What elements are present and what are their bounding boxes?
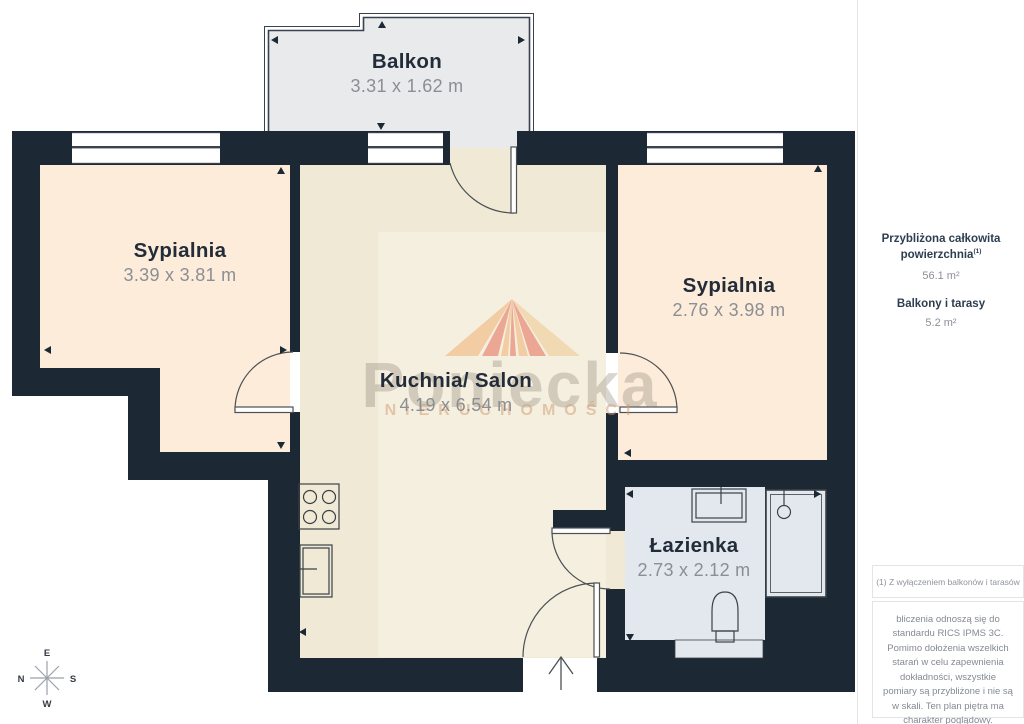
window-bedroom-right [647, 132, 783, 164]
room-label-kuchnia-salon: Kuchnia/ Salon 4.19 x 6.54 m [380, 369, 532, 416]
room-name: Sypialnia [124, 239, 237, 263]
room-name: Łazienka [638, 534, 751, 558]
hall-stub-wall [553, 510, 625, 529]
footnote-box: (1) Z wyłączeniem balkonów i tarasów [872, 565, 1024, 598]
compass-top-label: E [44, 648, 50, 659]
area-summary: Przybliżona całkowita powierzchnia(1) 56… [858, 231, 1024, 329]
balcony-door-threshold-inner [450, 148, 517, 165]
balcony-door-threshold [450, 131, 517, 148]
bathroom-doorway-floor [606, 531, 625, 589]
room-name: Balkon [351, 50, 464, 74]
windows [72, 132, 783, 164]
room-dims: 3.39 x 3.81 m [124, 265, 237, 286]
total-area-value: 56.1 m² [858, 270, 1024, 282]
bathroom-step [675, 640, 763, 658]
room-dims: 4.19 x 6.54 m [380, 395, 532, 416]
room-name: Kuchnia/ Salon [380, 369, 532, 393]
room-dims: 2.73 x 2.12 m [638, 560, 751, 581]
room-dims: 2.76 x 3.98 m [673, 300, 786, 321]
room-dims: 3.31 x 1.62 m [351, 76, 464, 97]
compass-icon: E S W N [18, 648, 77, 710]
room-label-balkon: Balkon 3.31 x 1.62 m [351, 50, 464, 97]
room-name: Sypialnia [673, 274, 786, 298]
total-area-label-text: Przybliżona całkowita powierzchnia [882, 233, 1001, 261]
room-label-sypialnia-left: Sypialnia 3.39 x 3.81 m [124, 239, 237, 286]
window-bedroom-left [72, 132, 220, 164]
balcony-area-value: 5.2 m² [858, 317, 1024, 329]
total-area-label: Przybliżona całkowita powierzchnia(1) [858, 231, 1024, 263]
total-area-superscript: (1) [973, 248, 981, 255]
compass-bottom-label: W [43, 699, 52, 710]
room-label-sypialnia-right: Sypialnia 2.76 x 3.98 m [673, 274, 786, 321]
disclaimer-box: bliczenia odnoszą się do standardu RICS … [872, 601, 1024, 718]
window-kitchen [368, 132, 443, 164]
disclaimer-text: bliczenia odnoszą się do standardu RICS … [882, 613, 1014, 724]
floor-plan-page: E S W N Poniecka NIERUCHOMOŚCI Balkon 3.… [0, 0, 1024, 724]
kitchen-rug [378, 232, 606, 657]
compass-right-label: S [70, 674, 76, 685]
footnote-text: (1) Z wyłączeniem balkonów i tarasów [876, 577, 1020, 587]
room-label-lazienka: Łazienka 2.73 x 2.12 m [638, 534, 751, 581]
shower-icon [766, 490, 826, 597]
balcony-area-label: Balkony i tarasy [858, 298, 1024, 310]
entrance-arrow [549, 657, 573, 690]
info-sidebar: Przybliżona całkowita powierzchnia(1) 56… [857, 0, 1024, 724]
compass-left-label: N [18, 674, 25, 685]
